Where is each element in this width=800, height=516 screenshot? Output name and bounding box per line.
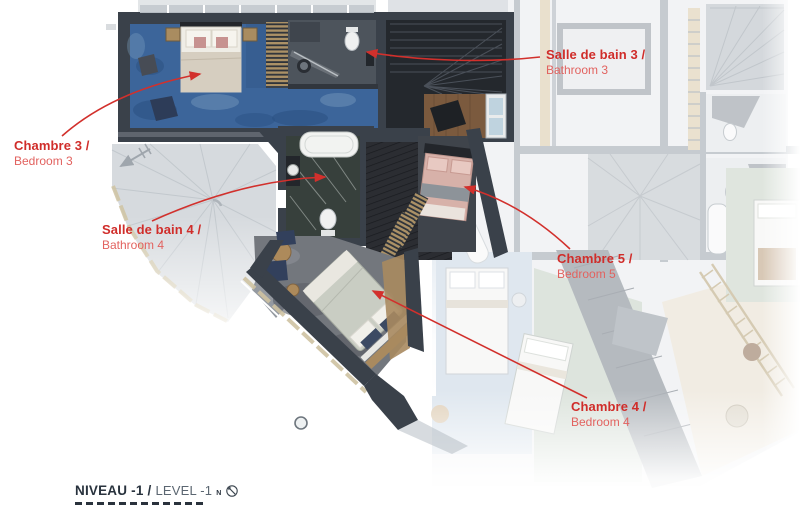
label-subtitle: Bedroom 3 (14, 155, 90, 168)
floor-plan-page: Chambre 3 / Bedroom 3 Salle de bain 3 / … (0, 0, 800, 516)
label-title: Salle de bain 4 / (102, 223, 201, 238)
ghost-right-fade (762, 0, 800, 516)
stairs (386, 20, 506, 138)
column-marker (295, 417, 307, 429)
window-band (140, 5, 374, 13)
label-title: Chambre 3 / (14, 139, 90, 154)
label-chambre-5: Chambre 5 / Bedroom 5 (557, 252, 633, 281)
label-subtitle: Bedroom 4 (571, 416, 647, 429)
north-label: N (216, 490, 221, 498)
bed-icon (180, 22, 242, 92)
label-chambre-4: Chambre 4 / Bedroom 4 (571, 400, 647, 429)
ghost-radial-floor (588, 154, 700, 260)
toilet-icon (320, 209, 336, 229)
bathroom3-room (288, 20, 378, 89)
top-wing (118, 5, 514, 142)
floor-plan-drawing (0, 0, 800, 516)
label-subtitle: Bedroom 5 (557, 268, 633, 281)
label-subtitle: Bathroom 4 (102, 239, 201, 252)
level-title-fr: NIVEAU -1 / (75, 483, 151, 498)
ghost-bed-icon (446, 268, 508, 374)
label-title: Chambre 5 / (557, 252, 633, 267)
label-title: Salle de bain 3 / (546, 48, 645, 63)
level-title-en: LEVEL -1 (155, 483, 212, 498)
label-salle-de-bain-4: Salle de bain 4 / Bathroom 4 (102, 223, 201, 252)
nightstand-icon (243, 28, 257, 41)
label-salle-de-bain-3: Salle de bain 3 / Bathroom 3 (546, 48, 645, 77)
label-title: Chambre 4 / (571, 400, 647, 415)
dashed-underline (75, 502, 205, 505)
bathroom4-room (278, 126, 374, 246)
level-title: NIVEAU -1 / LEVEL -1 N (75, 483, 239, 505)
bed-icon (416, 143, 476, 221)
toilet-icon (345, 32, 359, 51)
nightstand-icon (166, 28, 180, 41)
label-subtitle: Bathroom 3 (546, 64, 645, 77)
label-chambre-3: Chambre 3 / Bedroom 3 (14, 139, 90, 168)
wood-divider (266, 22, 288, 86)
north-arrow-icon (225, 484, 239, 498)
